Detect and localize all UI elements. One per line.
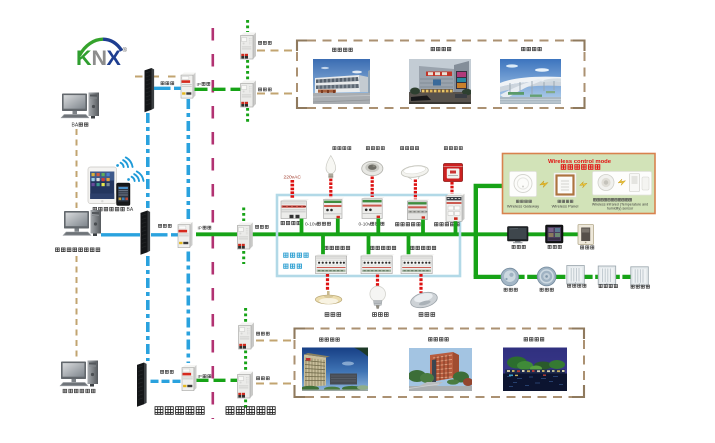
svg-text:0-10v: 0-10v — [305, 222, 318, 228]
svg-text:K: K — [76, 46, 92, 70]
svg-text:BA: BA — [127, 207, 134, 213]
svg-text:IP: IP — [197, 82, 201, 87]
svg-text:Wireless control mode: Wireless control mode — [548, 159, 612, 165]
svg-text:BA: BA — [72, 123, 79, 129]
svg-text:0-10v: 0-10v — [359, 222, 372, 228]
svg-text:N: N — [92, 46, 108, 70]
svg-text:Wireless Gateway: Wireless Gateway — [507, 204, 539, 209]
svg-text:220vAC: 220vAC — [284, 175, 302, 181]
svg-text:humidity) sensor: humidity) sensor — [607, 207, 634, 211]
svg-text:IP: IP — [198, 226, 202, 231]
svg-text:Wireless Panel: Wireless Panel — [552, 204, 579, 209]
svg-text:®: ® — [123, 47, 128, 54]
svg-text:X: X — [107, 46, 122, 70]
svg-text:IP: IP — [198, 374, 202, 379]
